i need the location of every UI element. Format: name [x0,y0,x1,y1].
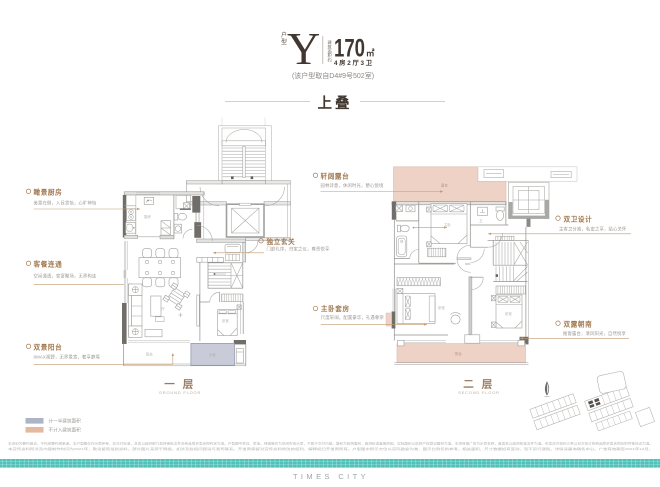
svg-text:Y: Y [287,23,320,74]
svg-text:轩阔露台: 轩阔露台 [321,172,350,181]
svg-text:主客卫分离，私密之享，贴心关怀: 主客卫分离，私密之享，贴心关怀 [559,226,627,233]
svg-text:阳台: 阳台 [455,351,462,356]
svg-text:TIMES CITY: TIMES CITY [293,472,369,481]
svg-text:客餐连通: 客餐连通 [33,260,63,269]
svg-text:一 层: 一 层 [164,379,195,391]
svg-text:本宣传资料所涉及内容制作时间为2021年，敬请留意最新资料。: 本宣传资料所涉及内容制作时间为2021年，敬请留意最新资料。部分图片来源于网络，… [8,446,653,451]
svg-text:计一半建筑面积: 计一半建筑面积 [49,418,82,425]
svg-text:卧室: 卧室 [438,305,445,310]
svg-text:露台: 露台 [441,183,448,188]
svg-text:4 房 2 厅 3 卫: 4 房 2 厅 3 卫 [334,59,373,67]
svg-text:瞰景厨房: 瞰景厨房 [34,188,63,197]
svg-text:本资料为要约邀请，不构成要约或承诺。本户型图仅作示意参考，非: 本资料为要约邀请，不构成要约或承诺。本户型图仅作示意参考，非交付标准，具体以政府… [8,440,653,445]
svg-text:设备: 设备 [209,352,216,357]
svg-text:(该户型取自D4#9号502室): (该户型取自D4#9号502室) [292,71,374,80]
svg-text:主卧: 主卧 [444,222,451,227]
svg-text:双露朝南: 双露朝南 [564,319,593,328]
svg-text:尺度轩阔，配置豪华，礼遇尊崇: 尺度轩阔，配置豪华，礼遇尊崇 [321,314,384,321]
svg-text:推窗露台，清风阳光，自然悦享: 推窗露台，清风阳光，自然悦享 [563,330,626,337]
svg-text:卧室: 卧室 [505,311,512,316]
svg-text:门庭礼序，归家之仪，尊贵悦享: 门庭礼序，归家之仪，尊贵悦享 [267,246,330,253]
svg-text:GROUND FLOOR: GROUND FLOOR [159,390,201,395]
svg-text:厨房: 厨房 [144,214,151,219]
svg-text:卧室: 卧室 [222,318,229,323]
svg-text:不计入建筑面积: 不计入建筑面积 [49,427,82,434]
svg-text:SECOND FLOOR: SECOND FLOOR [458,390,500,395]
svg-text:主卧套房: 主卧套房 [321,304,350,313]
svg-text:8MAX视野，无界景宽，奢享静境: 8MAX视野，无界景宽，奢享静境 [34,354,101,361]
svg-text:园林诗意，休闲时光，憩心悦境: 园林诗意，休闲时光，憩心悦境 [321,182,384,189]
svg-text:独立玄关: 独立玄关 [266,237,296,246]
svg-text:二 层: 二 层 [463,379,494,391]
svg-text:约: 约 [328,57,332,64]
svg-text:170: 170 [334,35,365,63]
svg-text:双景阳台: 双景阳台 [34,343,63,352]
svg-text:阳台: 阳台 [146,352,153,357]
svg-text:上叠: 上叠 [318,94,353,112]
svg-text:㎡: ㎡ [366,48,375,58]
svg-text:空间通透，家宴聚场，无界构连: 空间通透，家宴聚场，无界构连 [34,273,97,280]
svg-text:卫: 卫 [479,219,483,223]
svg-text:双卫设计: 双卫设计 [564,214,593,223]
svg-text:美景在侧，入目赏怡，心旷神怡: 美景在侧，入目赏怡，心旷神怡 [34,200,97,207]
